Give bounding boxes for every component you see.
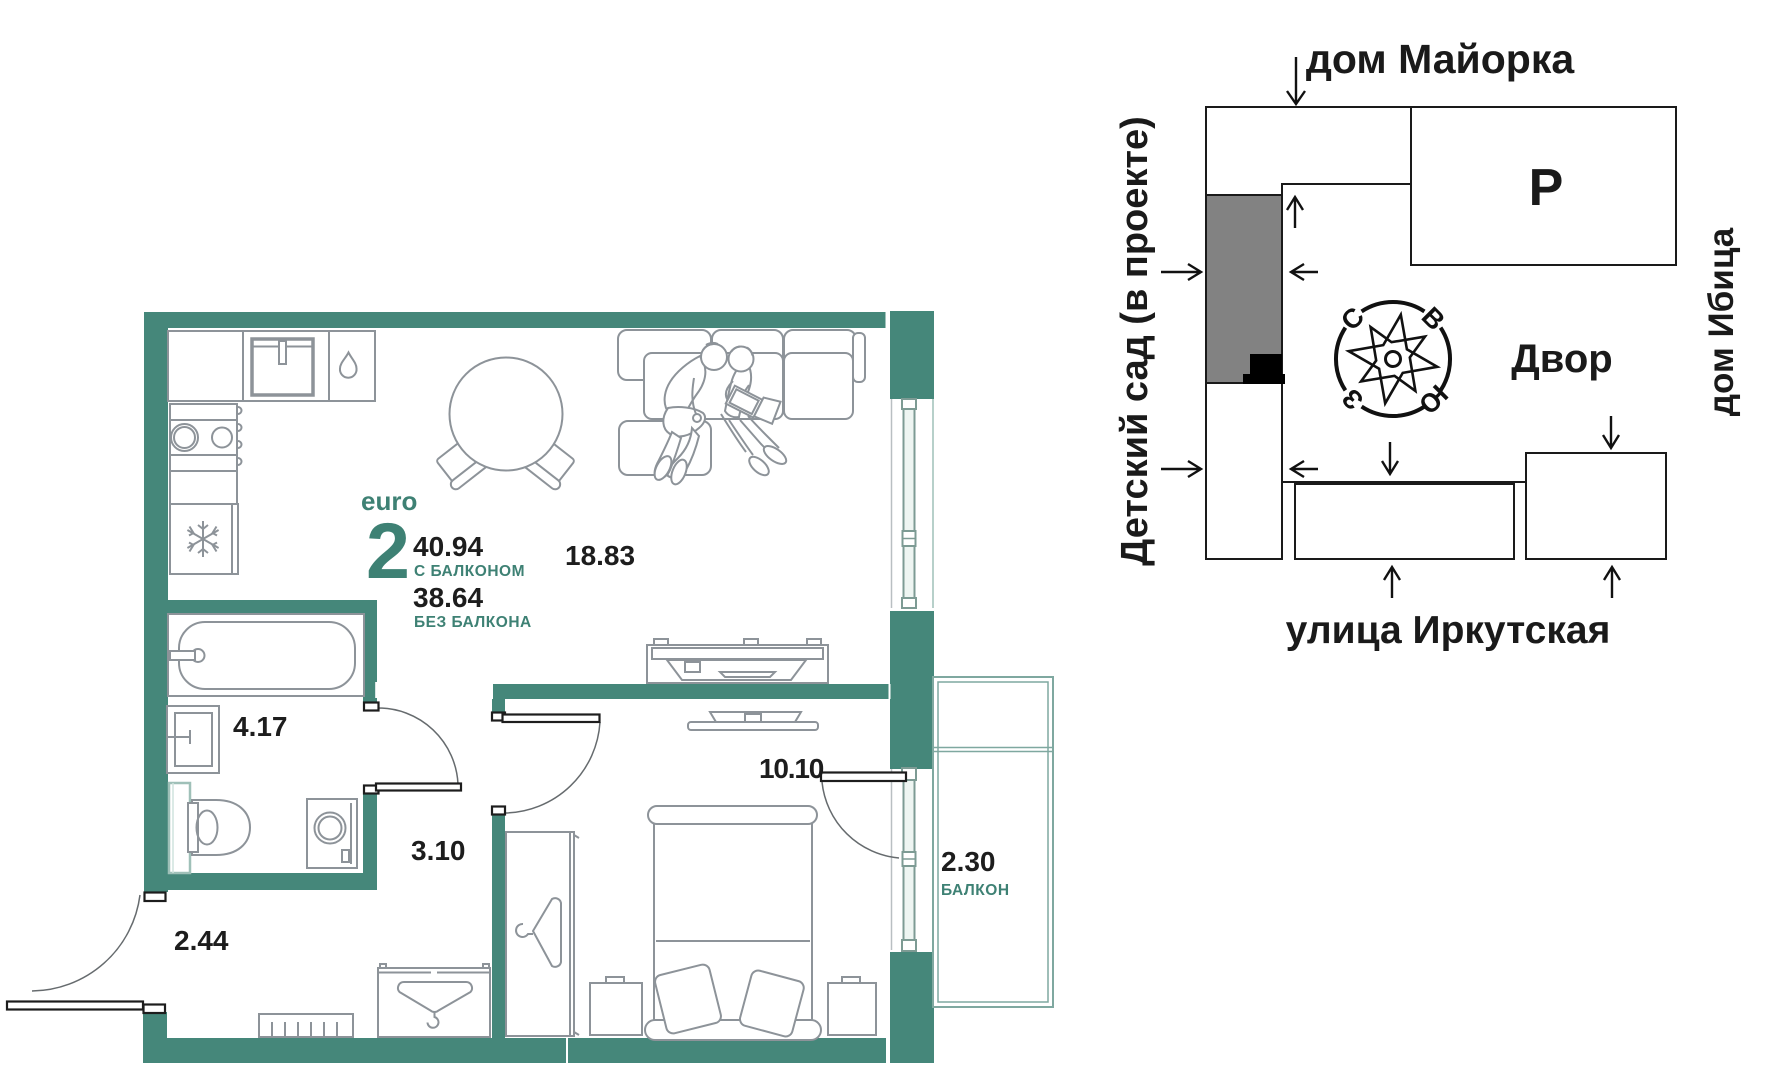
svg-text:10.10: 10.10 xyxy=(759,753,824,784)
svg-text:С БАЛКОНОМ: С БАЛКОНОМ xyxy=(414,563,525,580)
svg-text:дом Майорка: дом Майорка xyxy=(1306,36,1576,82)
svg-text:4.17: 4.17 xyxy=(233,711,288,742)
svg-text:улица Иркутская: улица Иркутская xyxy=(1286,609,1611,652)
svg-text:Р: Р xyxy=(1529,159,1564,217)
svg-text:2.44: 2.44 xyxy=(174,925,229,956)
svg-text:БАЛКОН: БАЛКОН xyxy=(941,882,1010,899)
svg-text:дом Ибица: дом Ибица xyxy=(1702,227,1741,416)
svg-text:Детский сад (в проекте): Детский сад (в проекте) xyxy=(1114,116,1156,566)
svg-text:БЕЗ БАЛКОНА: БЕЗ БАЛКОНА xyxy=(414,614,532,631)
svg-text:3.10: 3.10 xyxy=(411,835,466,866)
svg-text:40.94: 40.94 xyxy=(413,531,483,562)
svg-text:Двор: Двор xyxy=(1511,337,1612,381)
svg-text:38.64: 38.64 xyxy=(413,582,483,613)
svg-text:18.83: 18.83 xyxy=(565,540,635,571)
svg-text:2.30: 2.30 xyxy=(941,846,996,877)
svg-text:2: 2 xyxy=(366,506,410,595)
